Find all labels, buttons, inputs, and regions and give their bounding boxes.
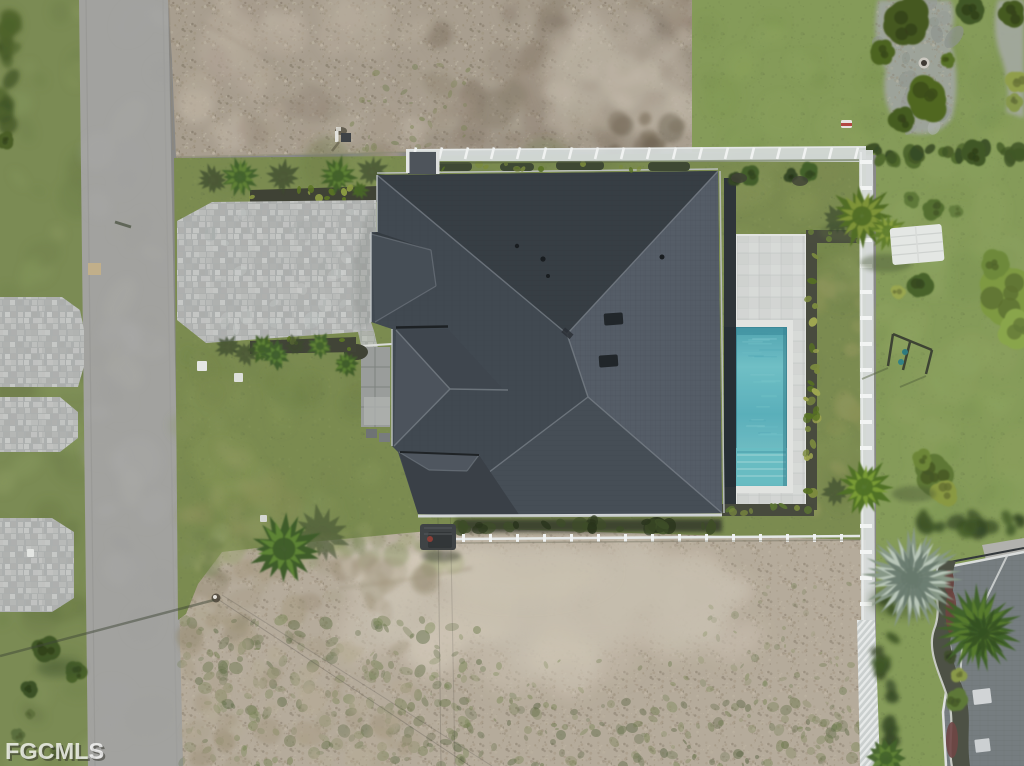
svg-text:FGCMLS: FGCMLS (5, 738, 104, 764)
